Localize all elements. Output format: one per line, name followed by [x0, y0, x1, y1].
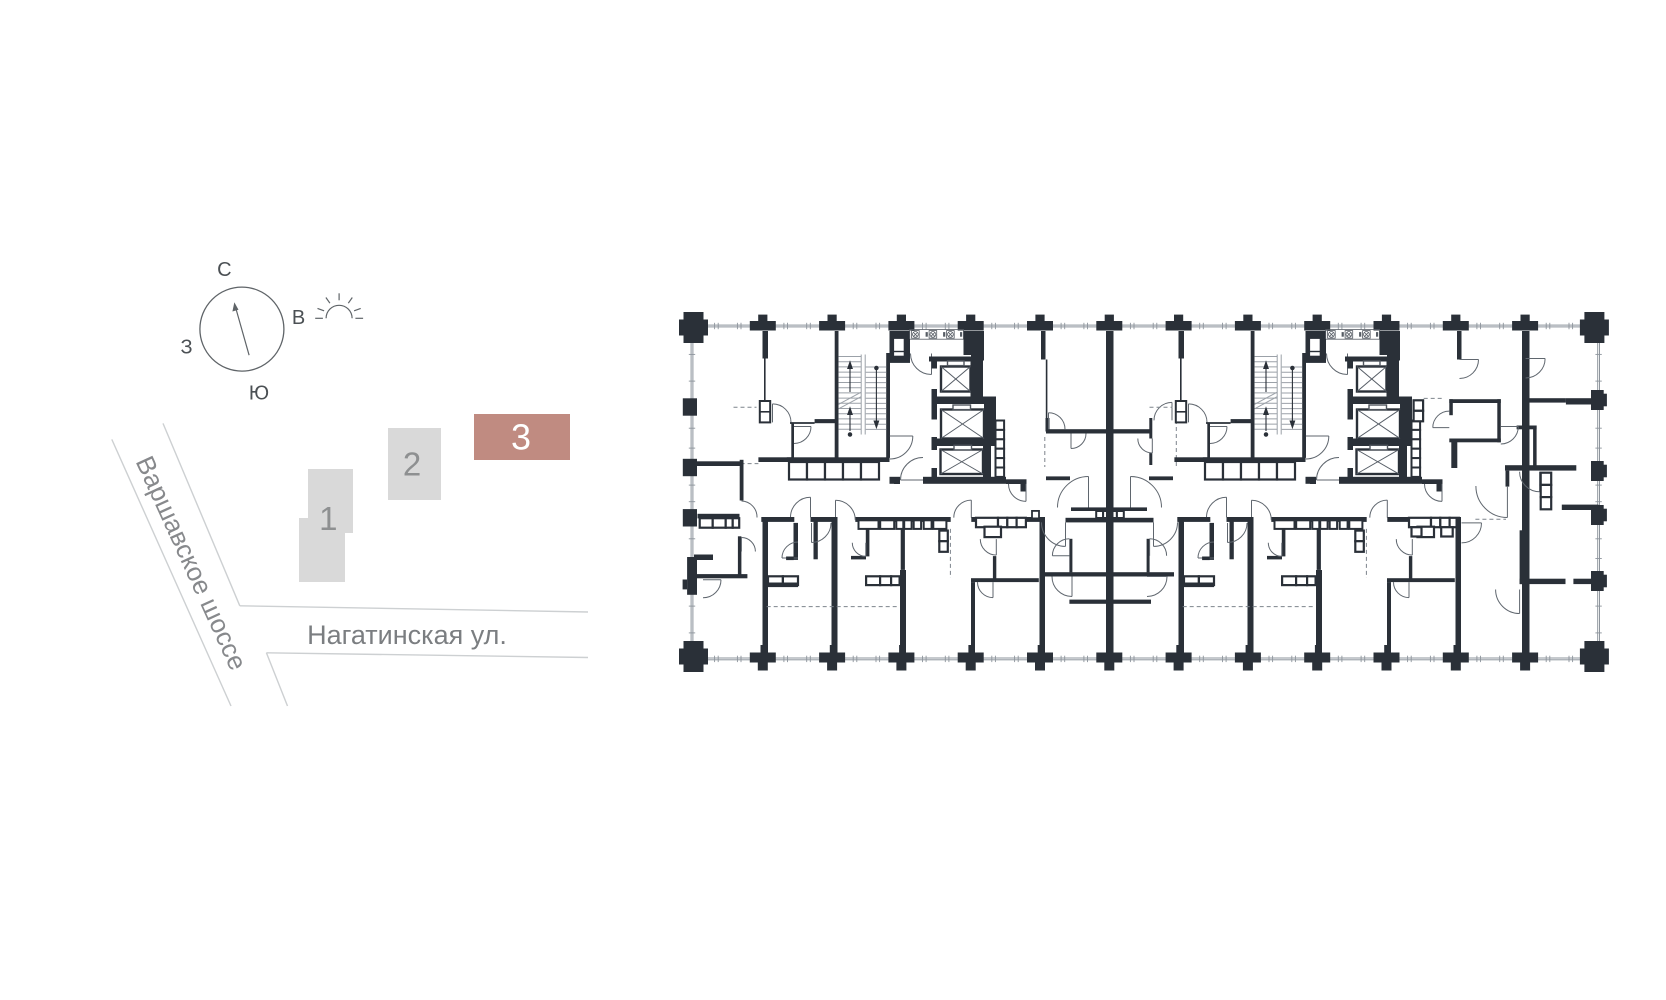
- svg-text:Ю: Ю: [249, 383, 269, 405]
- svg-text:2: 2: [403, 446, 421, 483]
- svg-text:3: 3: [511, 417, 531, 458]
- svg-text:Варшавское шоссе: Варшавское шоссе: [130, 451, 253, 674]
- svg-text:1: 1: [319, 500, 337, 537]
- svg-text:Нагатинская ул.: Нагатинская ул.: [307, 620, 507, 650]
- svg-text:В: В: [292, 307, 305, 329]
- svg-text:С: С: [217, 259, 231, 281]
- svg-text:З: З: [181, 337, 193, 359]
